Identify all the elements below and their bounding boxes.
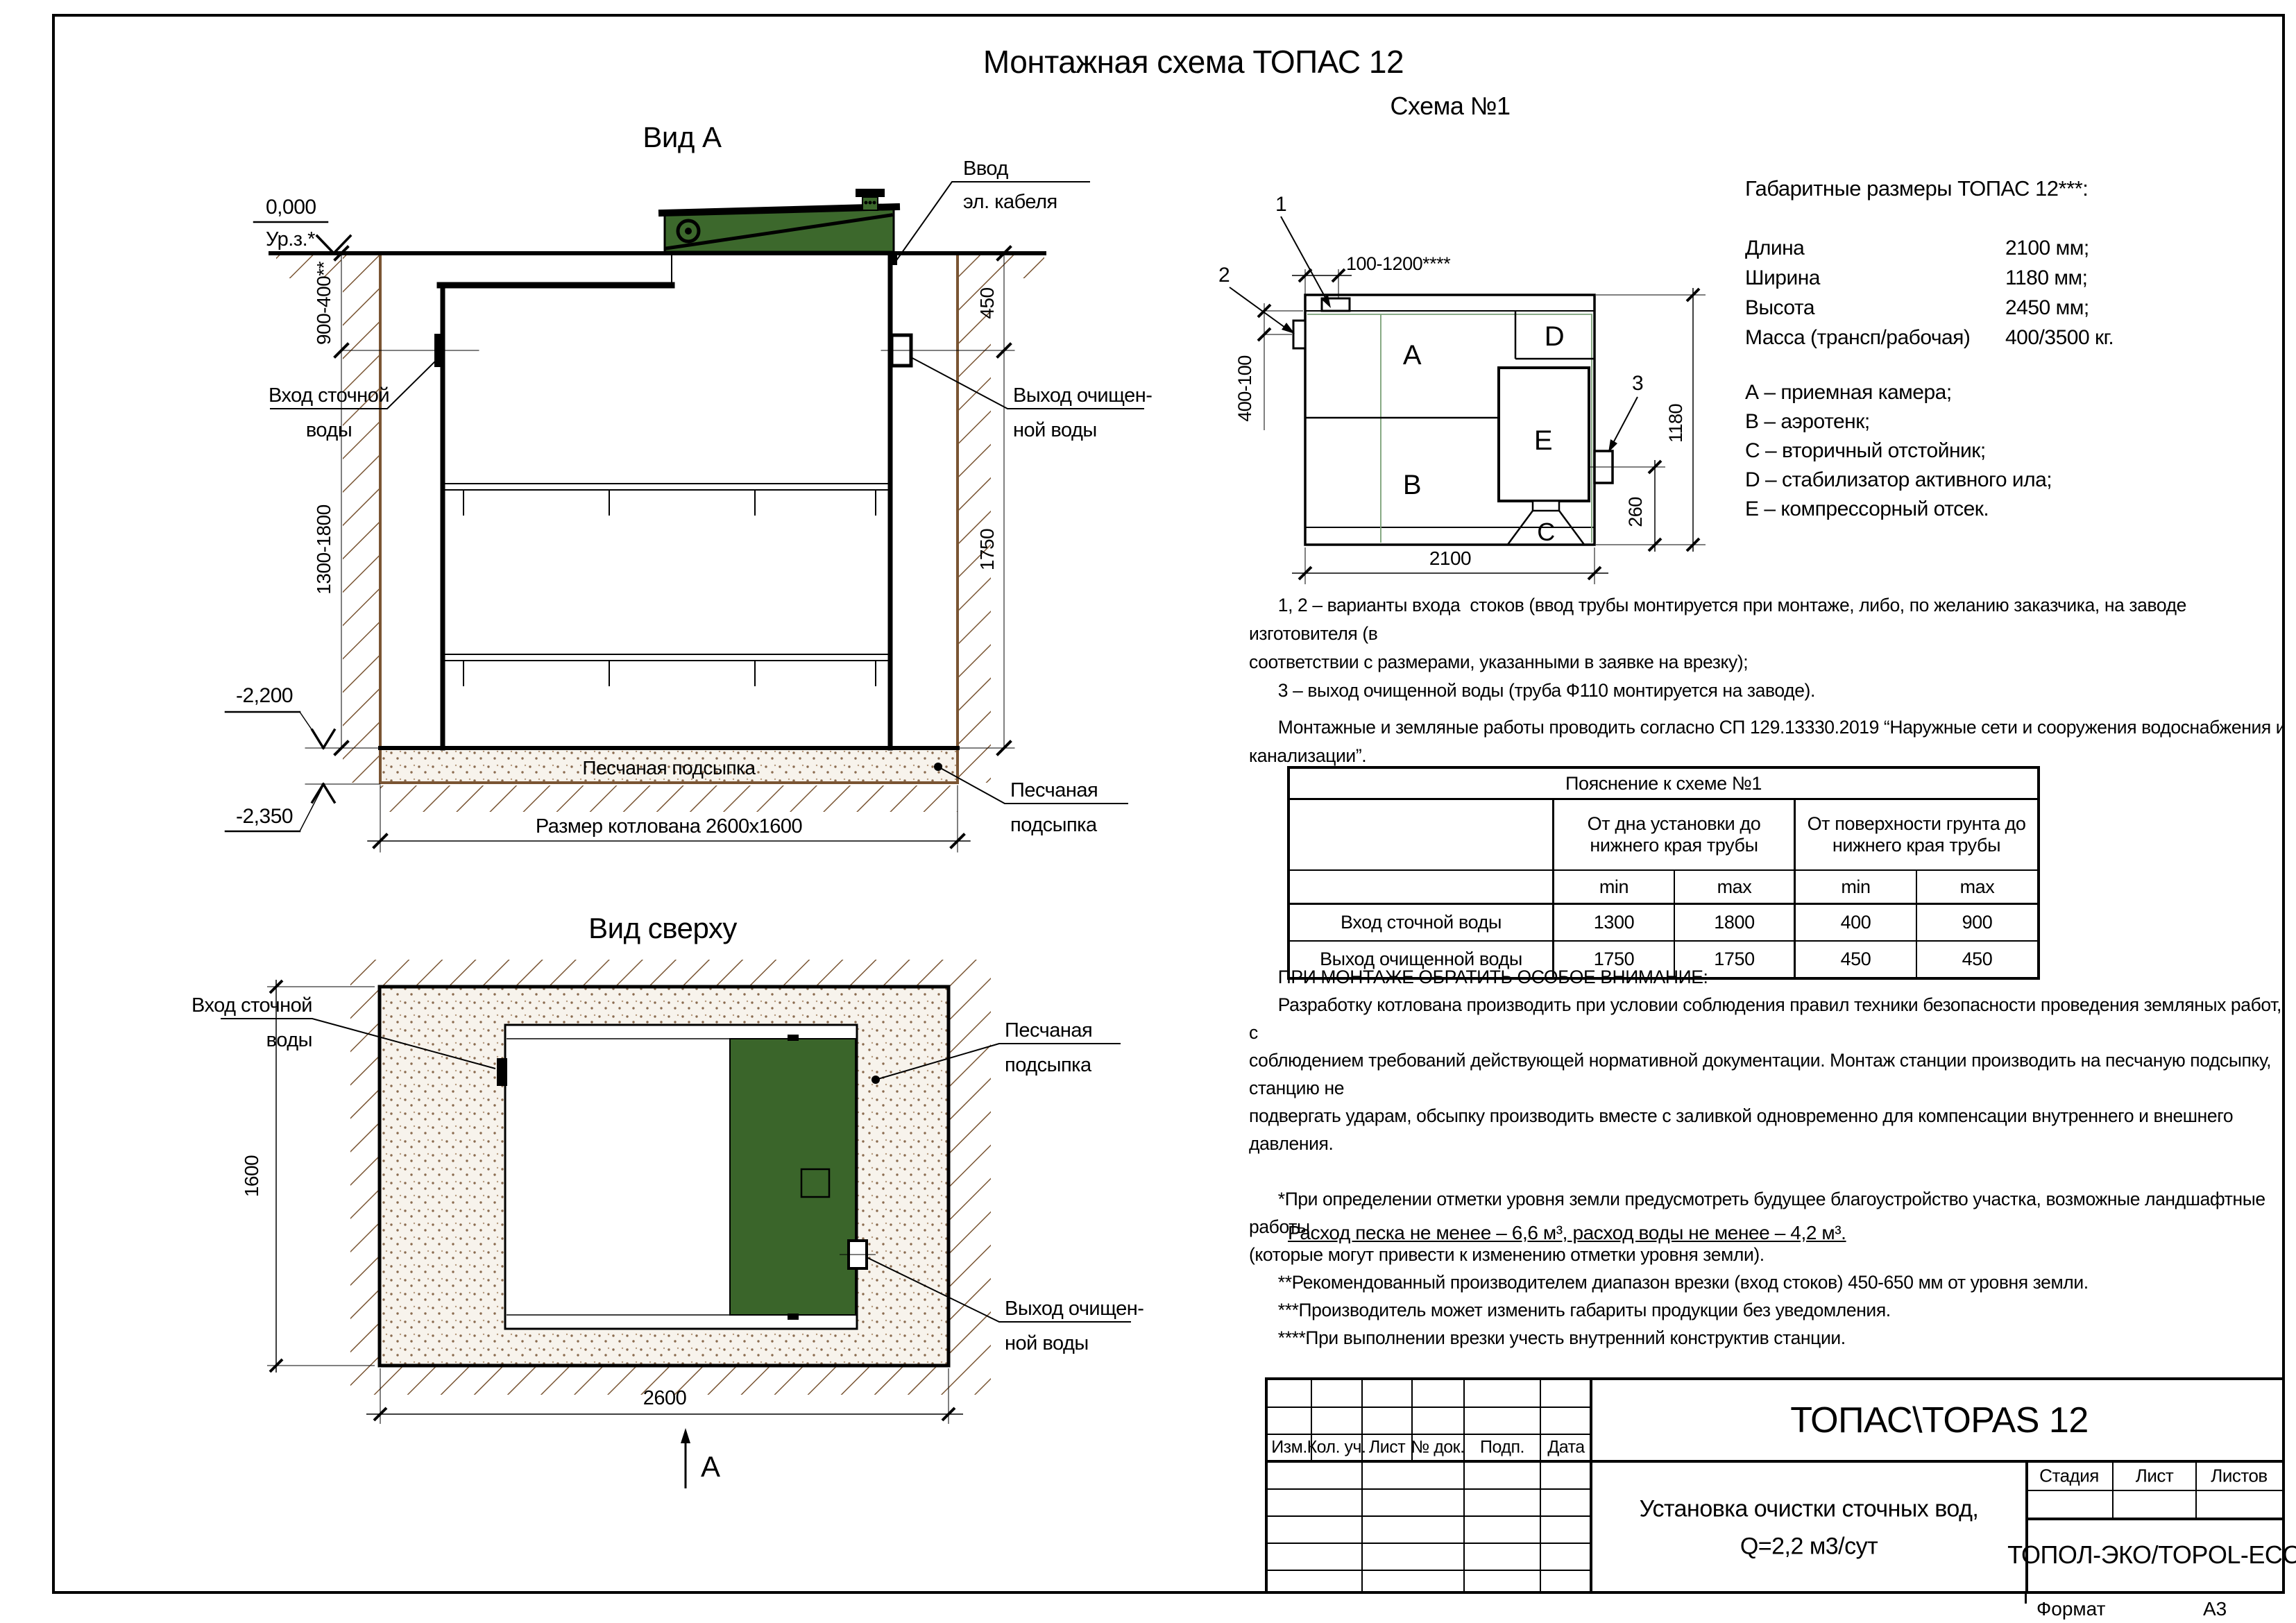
attention-notes: ПРИ МОНТАЖЕ ОБРАТИТЬ ОСОБОЕ ВНИМАНИЕ: Ра… [1249,963,2290,1352]
top-view-inlet-label-2: воды [266,1029,312,1051]
tb-company: ТОПОЛ-ЭКО/TOPOL-ECO [2007,1540,2296,1570]
table-corner-cell [1289,799,1554,871]
spec-value-3: 400/3500 кг. [2005,326,2114,349]
pit-size-label: Размер котлована 2600х1600 [536,815,802,838]
dim-depth-top: 900-400** [313,261,334,345]
legend-e: Е – компрессорный отсек. [1745,498,1989,520]
tb-col-podp: Подп. [1480,1438,1524,1458]
tank-section [380,253,958,748]
outlet-label-2: ной воды [1013,419,1097,441]
table-r0-v2: 1800 [1674,904,1795,942]
pit-wall-hatch-left [343,255,380,783]
inlet-label-2: воды [306,419,352,441]
inlet-label-1: Вход сточной [269,384,389,407]
elevation-pit-bottom-value: -2,350 [236,805,293,828]
schema-dim-outlet: 260 [1625,497,1646,527]
tb-col-ndok: № док. [1411,1438,1464,1458]
spec-label-0: Длина [1745,237,1805,260]
sand-callout-label-2: подсыпка [1010,814,1098,836]
pit-floor-hatch [380,785,958,812]
table-group-1: От дна установки до нижнего края трубы [1554,799,1795,871]
table-min-1: min [1554,870,1675,904]
tb-stage: Стадия [2039,1465,2099,1487]
table-empty-c0 [1289,870,1554,904]
table-r0-v1: 1300 [1554,904,1675,942]
dim-out-top: 450 [976,287,998,318]
table-r0-v3: 400 [1795,904,1917,942]
notes-variants: 1, 2 – варианты входа стоков (ввод трубы… [1249,591,2296,705]
table-row: Вход сточной воды 1300 1800 400 900 [1289,904,2039,942]
top-view-inlet-stub [497,1058,507,1086]
tb-sheets: Листов [2211,1465,2267,1487]
tb-subtitle-2: Q=2,2 м3/сут [1740,1533,1878,1561]
top-view-lid [730,1039,856,1315]
schema-dim-right [1596,288,1706,552]
schema-dim-top-value: 100-1200**** [1346,253,1451,274]
table-row: От дна установки до нижнего края трубы О… [1289,799,2039,871]
compartment-c: С [1537,518,1555,546]
section-mark-label: А [701,1450,720,1483]
schema-inlet-2 [1293,321,1305,348]
pit-wall-hatch-right [959,255,991,783]
top-view-outlet-label-1: Выход очищен- [1005,1298,1143,1320]
spec-label-2: Высота [1745,296,1815,319]
format-label: Формат [2036,1598,2105,1620]
top-view-sand-label-1: Песчаная [1005,1019,1092,1042]
tb-doc-title: ТОПАС\TOPAS 12 [1790,1400,2089,1441]
spec-value-1: 1180 мм; [2005,266,2087,289]
elevation-zero: 0,000 Ур.з.* [254,196,350,253]
schema-dim-length: 2100 [1429,547,1471,569]
elevation-zero-value: 0,000 [266,196,316,219]
top-view: Вид сверху Вход сточной воды Выход [192,912,1144,1488]
legend-a: А – приемная камера; [1745,381,1952,404]
table-title: Пояснение к схеме №1 [1289,767,2039,799]
schema-mark-1: 1 [1275,193,1286,216]
format-tick [2025,1594,2027,1604]
tb-col-data: Дата [1547,1438,1584,1458]
table-row: min max min max [1289,870,2039,904]
specs-block: Габаритные размеры ТОПАС 12***: Длина 21… [1745,176,2114,520]
tank-lid [662,189,896,252]
table-min-2: min [1795,870,1917,904]
compartment-d: D [1545,321,1564,352]
tb-subtitle-1: Установка очистки сточных вод, [1640,1496,1979,1523]
table-max-2: max [1916,870,2039,904]
tb-col-izm: Изм. [1271,1438,1307,1458]
top-view-outlet-label-2: ной воды [1005,1332,1089,1354]
explanation-table: Пояснение к схеме №1 От дна установки до… [1287,766,2040,980]
legend-b: В – аэротенк; [1745,410,1870,433]
cable-entry-label-1: Ввод [963,158,1008,180]
legend-d: D – стабилизатор активного ила; [1745,468,2052,491]
section-arrow [681,1428,690,1488]
tb-col-koluch: Кол. уч. [1307,1438,1366,1458]
table-row: Пояснение к схеме №1 [1289,767,2039,799]
dim-out-bottom: 1750 [976,529,998,570]
notes-norms: Монтажные и земляные работы проводить со… [1249,713,2296,770]
spec-label-3: Масса (трансп/рабочая) [1745,326,1970,349]
top-view-dim-width-value: 1600 [241,1155,262,1197]
table-max-1: max [1674,870,1795,904]
schema-title: Схема №1 [1390,92,1510,120]
tb-sheet: Лист [2136,1465,2174,1487]
cable-entry-label-2: эл. кабеля [963,191,1057,213]
specs-heading: Габаритные размеры ТОПАС 12***: [1745,176,2088,201]
ground-level-mark: Ур.з.* [266,228,315,250]
top-view-inlet-label-1: Вход сточной [192,994,312,1017]
side-view-title: Вид А [643,121,722,153]
consumption-note: Расход песка не менее – 6,6 м³, расход в… [1288,1218,2259,1247]
table-r0-v4: 900 [1916,904,2039,942]
sand-bedding-text: Песчаная подсыпка [582,757,756,779]
sand-callout-label-1: Песчаная [1010,779,1098,801]
schema-1: Схема №1 А В С D [1218,92,1706,584]
elevation-tank-bottom-value: -2,200 [236,684,293,707]
top-view-sand-label-2: подсыпка [1005,1054,1092,1076]
title-block: Изм. Кол. уч. Лист № док. Подп. Дата ТОП… [1265,1377,2285,1594]
dim-depth-bottom: 1300-1800 [313,504,334,594]
top-view-dim-length-value: 2600 [643,1387,687,1409]
schema-dim-height: 1180 [1665,404,1686,443]
spec-label-1: Ширина [1745,266,1821,289]
compartment-a: А [1403,340,1422,371]
compartment-e: Е [1534,425,1552,456]
compartment-b: В [1403,470,1421,500]
side-view: Вид А Песчаная подсыпка [226,121,1152,852]
spec-value-0: 2100 мм; [2005,237,2089,260]
table-r0-label: Вход сточной воды [1289,904,1554,942]
outlet-label-1: Выход очищен- [1013,384,1152,407]
table-group-2: От поверхности грунта до нижнего края тр… [1795,799,2039,871]
tb-col-list: Лист [1369,1438,1405,1458]
legend-c: С – вторичный отстойник; [1745,439,1986,462]
schema-mark-3: 3 [1632,372,1643,395]
elevation-pit-bottom: -2,350 [226,784,380,831]
schema-dim-left-value: 400-100 [1234,355,1255,422]
schema-mark-2: 2 [1218,264,1230,287]
drawing-sheet: Монтажная схема ТОПАС 12 Вид А [0,0,2296,1623]
format-value: А3 [2203,1598,2227,1620]
top-view-title: Вид сверху [588,912,737,944]
spec-value-2: 2450 мм; [2005,296,2089,319]
